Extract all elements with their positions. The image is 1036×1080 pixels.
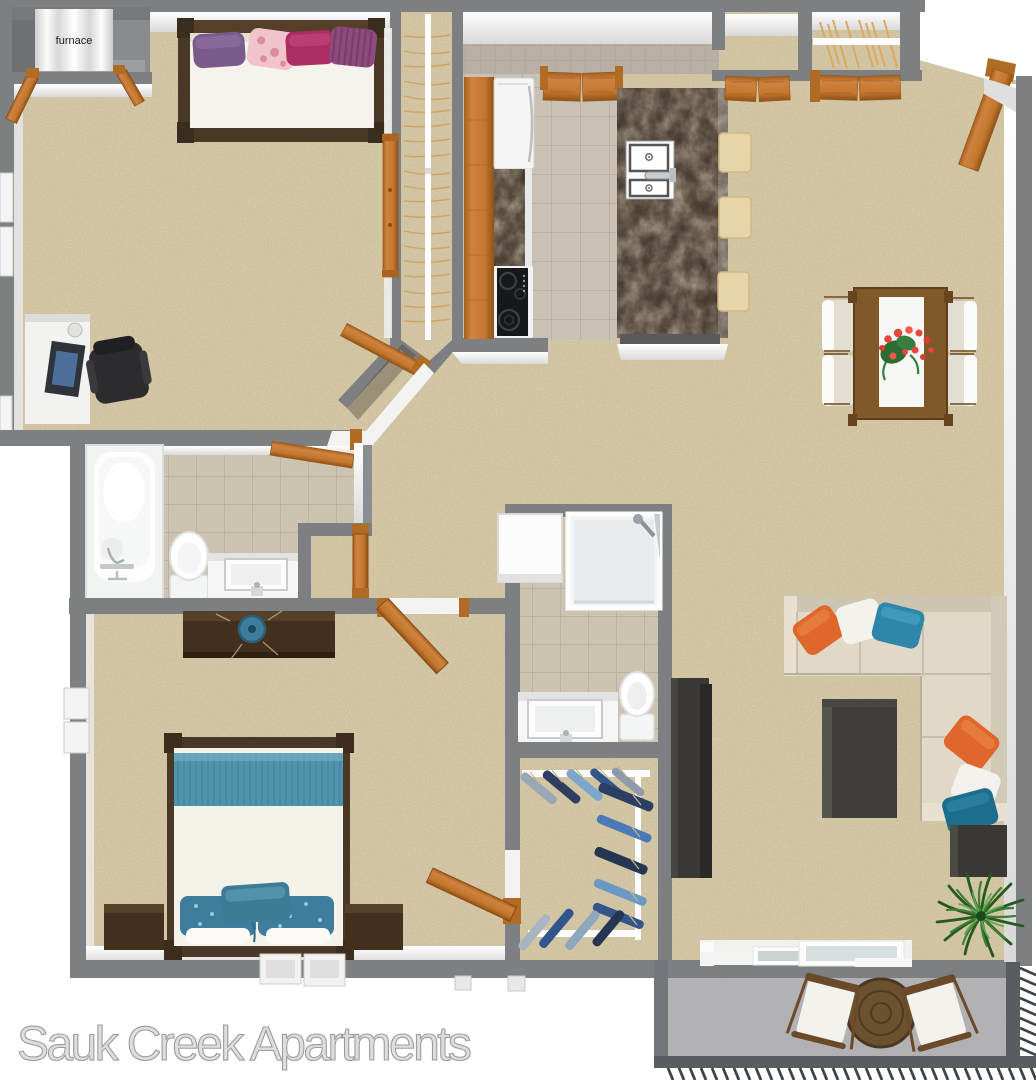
- svg-text:furnace: furnace: [56, 35, 93, 47]
- svg-text:Sauk Creek Apartments: Sauk Creek Apartments: [17, 1018, 471, 1071]
